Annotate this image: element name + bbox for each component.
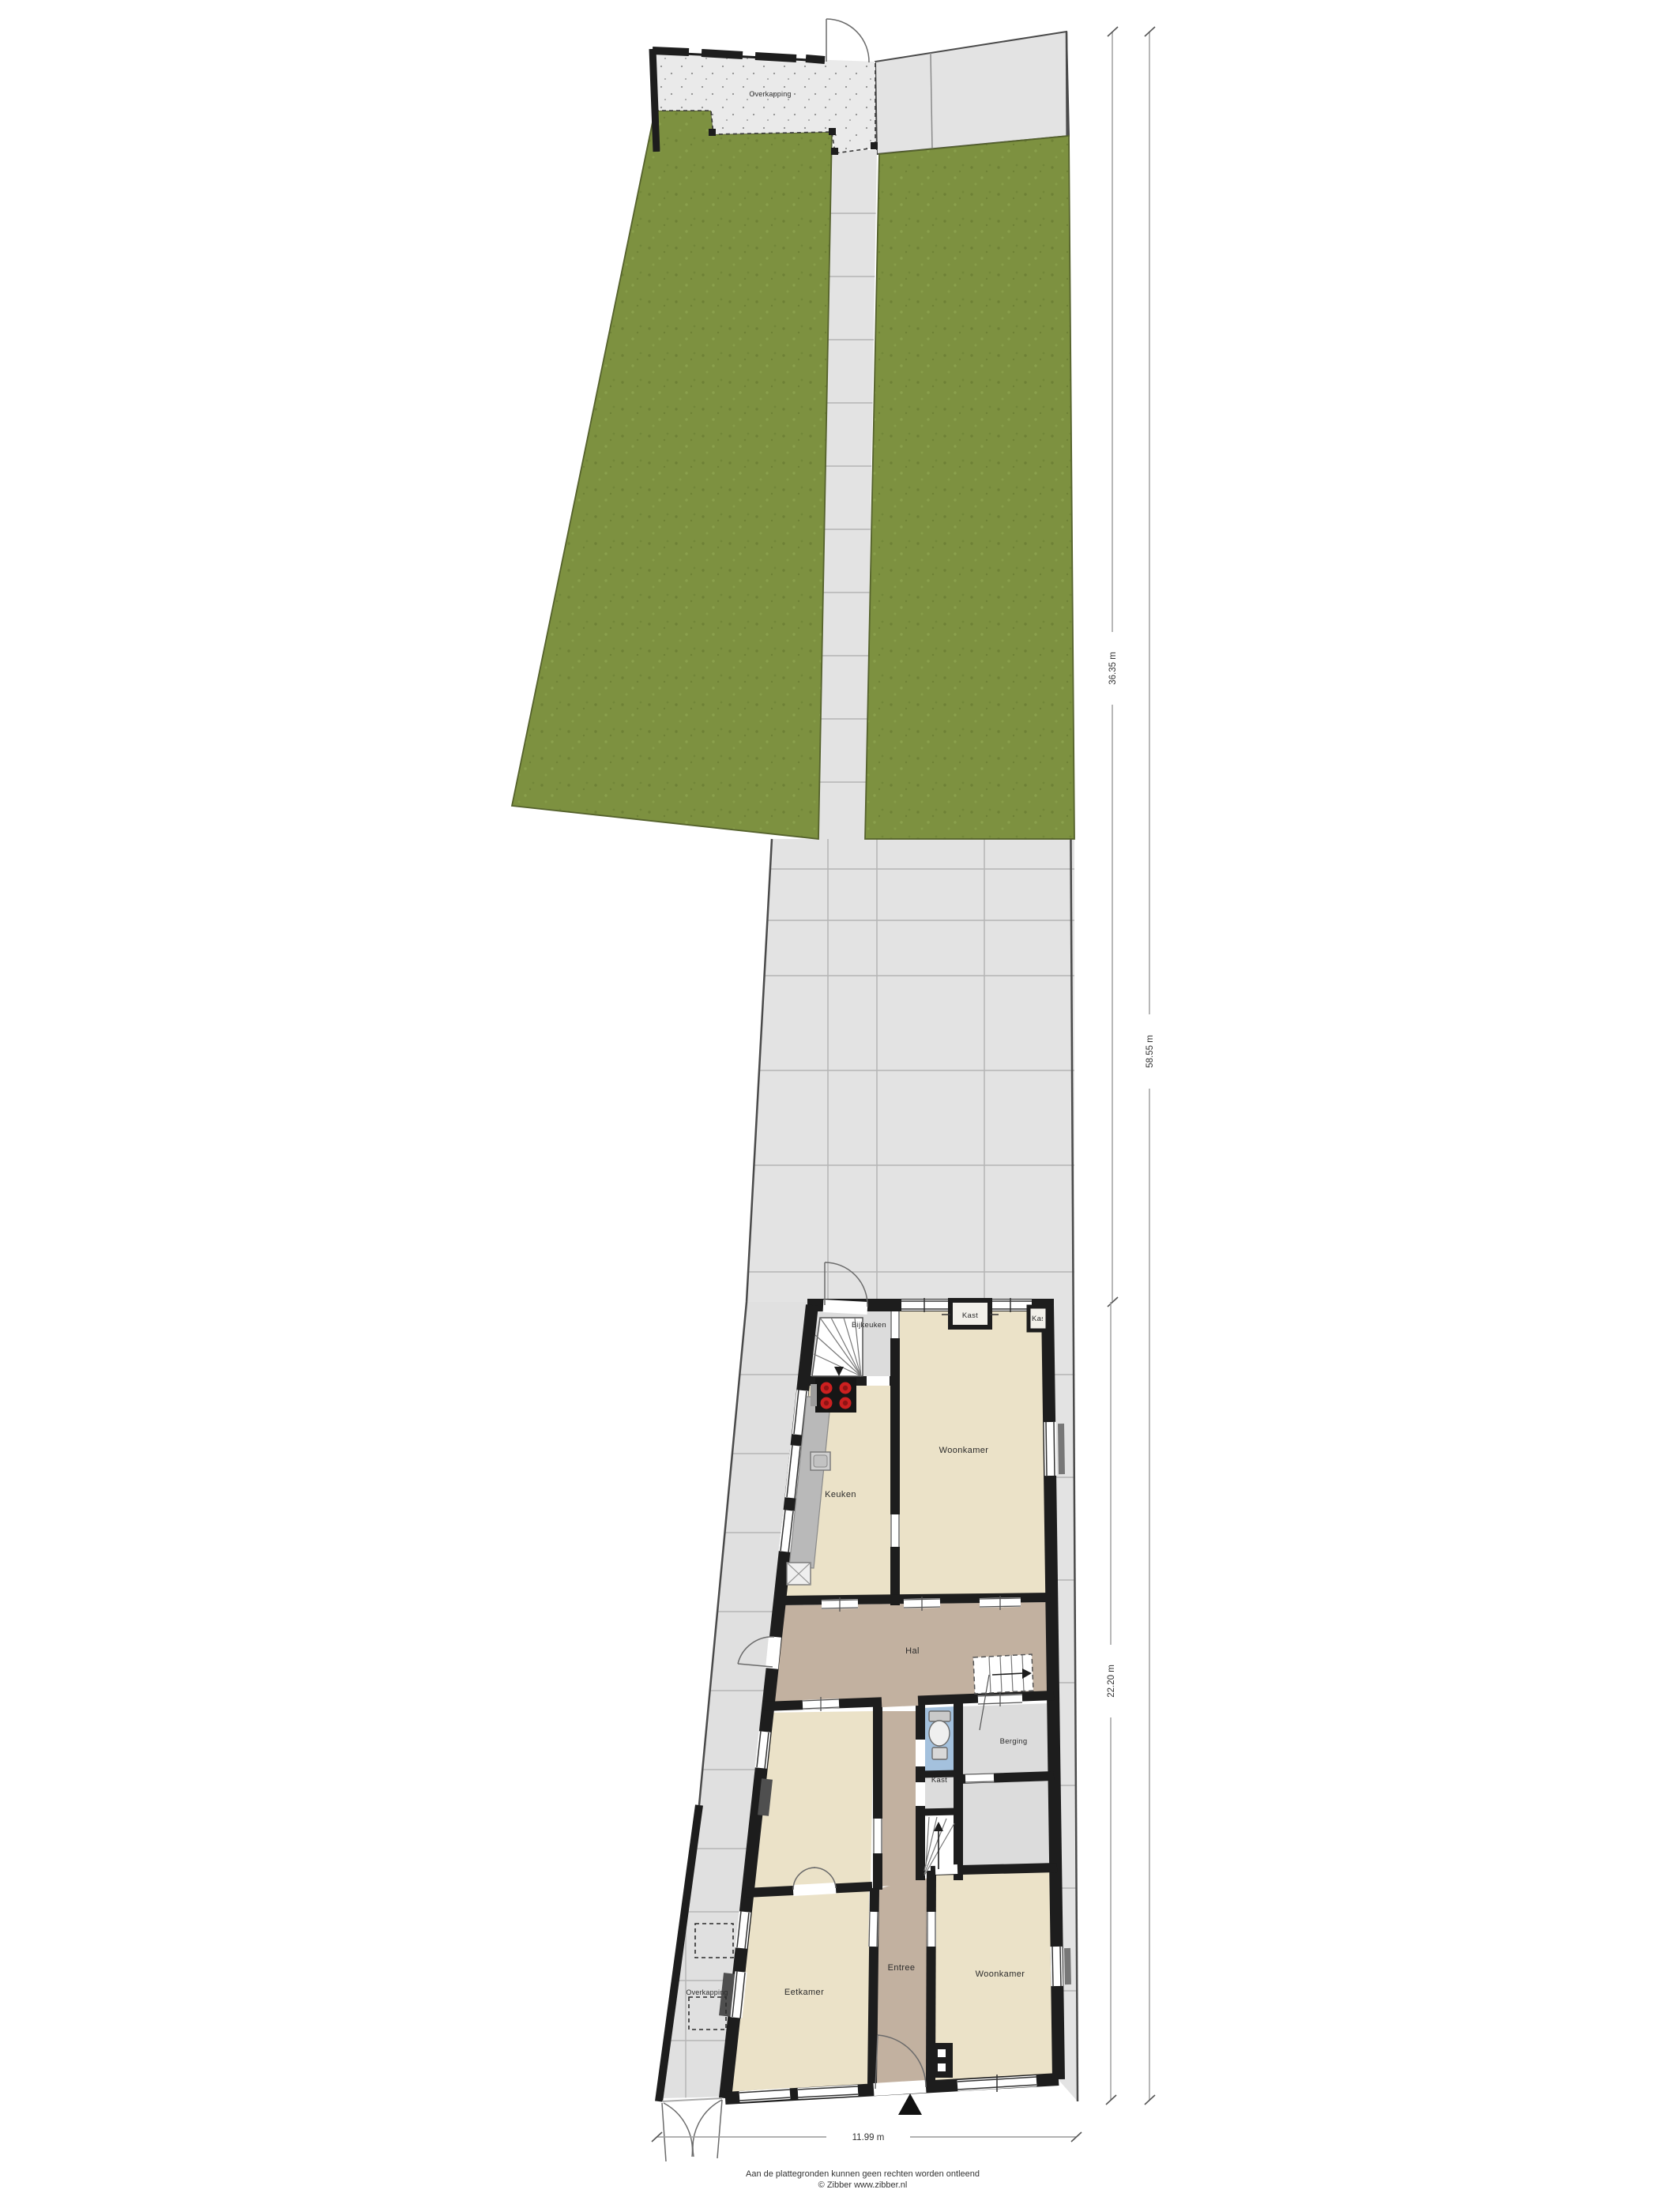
window-sill — [1067, 1948, 1068, 1984]
window — [901, 1298, 948, 1312]
radiator — [763, 1779, 767, 1815]
svg-text:22.20 m: 22.20 m — [1107, 1665, 1116, 1698]
room-label-berging: Berging — [1000, 1737, 1028, 1746]
top-gate-door — [826, 19, 869, 62]
toilet-icon — [929, 1711, 950, 1759]
north-arrow-icon — [898, 2093, 922, 2115]
footer-credit: © Zibber www.zibber.nl — [818, 2180, 908, 2190]
window — [989, 1298, 1032, 1312]
room-label-kast-mid: Kast — [931, 1776, 947, 1785]
room-label-entree: Entree — [888, 1963, 916, 1973]
sink-icon — [932, 1747, 947, 1759]
room-corridor — [880, 1711, 918, 1887]
room-label-keuken: Keuken — [825, 1490, 856, 1499]
svg-text:58.55 m: 58.55 m — [1145, 1035, 1155, 1068]
room-label-woonkamer-bottom: Woonkamer — [976, 1969, 1025, 1979]
svg-text:36.35 m: 36.35 m — [1108, 652, 1118, 685]
meter-cupboard — [932, 2043, 953, 2078]
appliance-icon — [787, 1563, 811, 1585]
room-label-eetkamer: Eetkamer — [784, 1988, 824, 1997]
dimension-total-depth: 58.55 m — [1145, 27, 1155, 2105]
footer-disclaimer: Aan de plattegronden kunnen geen rechten… — [746, 2169, 980, 2179]
dimension-width: 11.99 m — [652, 2132, 1082, 2142]
room-label-hal: Hal — [905, 1646, 920, 1656]
room-woonkamer-top — [897, 1310, 1049, 1601]
room-label-kast-top: Kast — [962, 1311, 978, 1320]
right-garden — [865, 136, 1074, 839]
gardens — [512, 111, 1074, 839]
floorplan-canvas: Overkapping — [0, 0, 1659, 2212]
svg-text:11.99 m: 11.99 m — [852, 2133, 885, 2142]
room-entree — [873, 1875, 931, 2086]
window-sill — [1061, 1424, 1062, 1474]
room-gray-2 — [961, 1781, 1055, 1868]
dimension-garden-depth: 36.35 m — [1108, 27, 1118, 1307]
room-label-bijkeuken: Bijkeuken — [852, 1321, 886, 1330]
left-garden — [512, 111, 832, 839]
dimension-house-depth: 22.20 m — [1106, 1302, 1116, 2105]
room-label-woonkamer-top: Woonkamer — [939, 1446, 989, 1455]
gate-doors — [662, 2098, 722, 2161]
overkapping-side-label: Overkapping — [686, 1988, 728, 1996]
cooktop-icon — [811, 1378, 856, 1413]
overkapping-top-label: Overkapping — [749, 90, 791, 98]
paving-top-right — [875, 32, 1069, 154]
